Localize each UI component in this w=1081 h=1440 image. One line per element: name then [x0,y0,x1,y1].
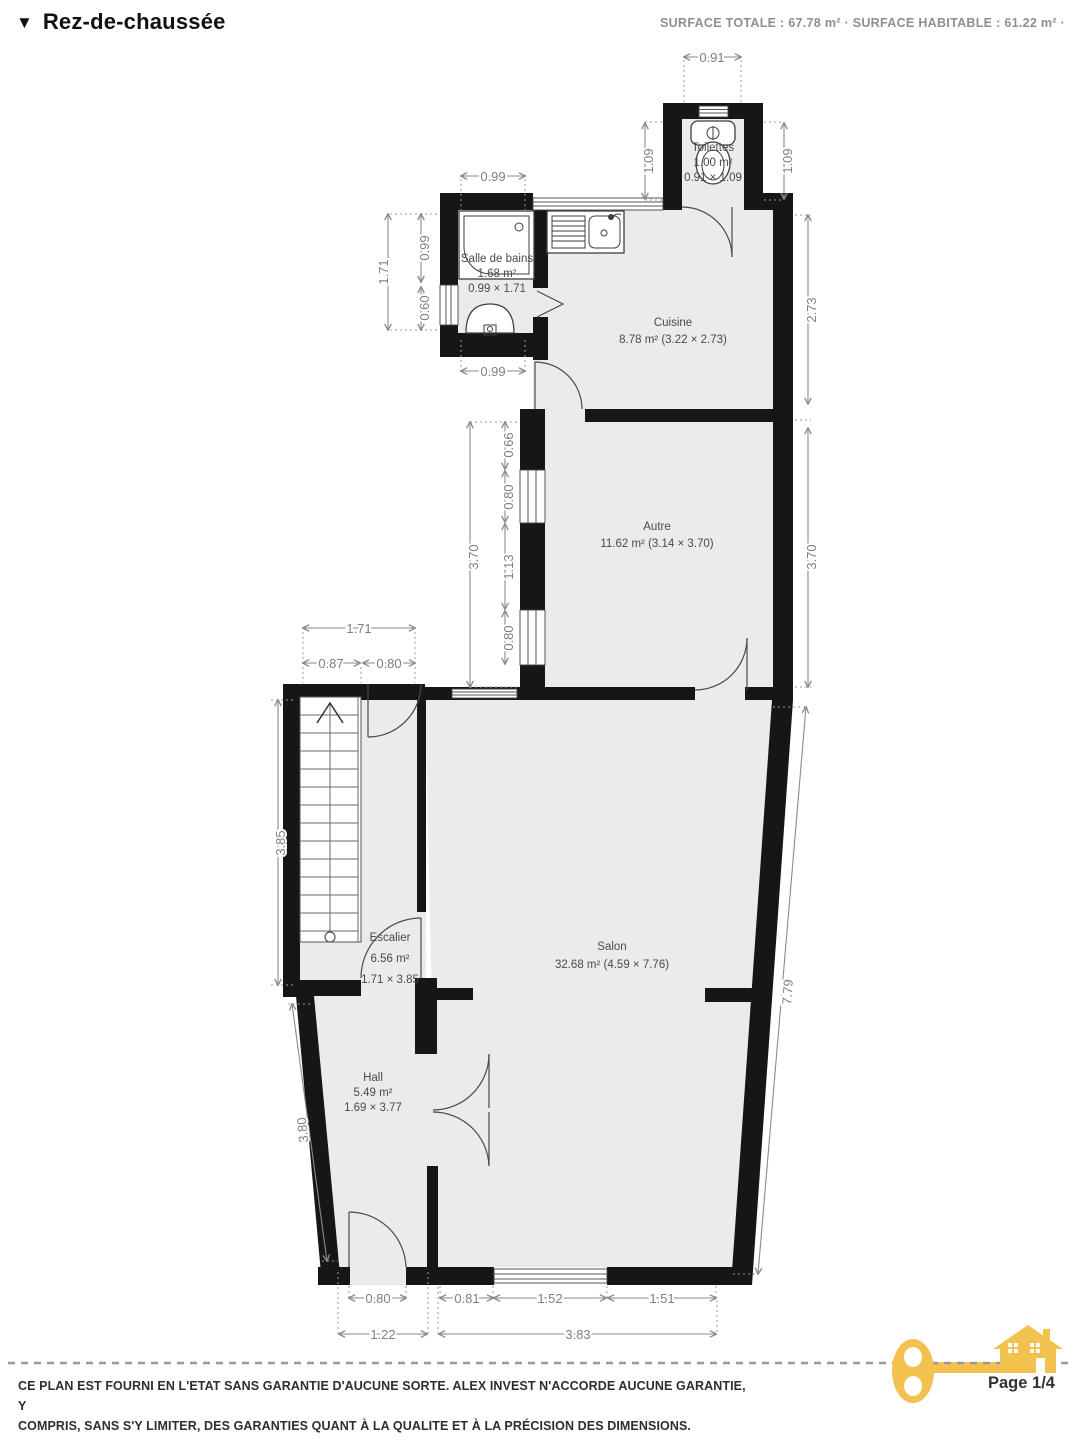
dim-sdb-width-bottom: 0.99 [480,364,505,379]
dim-toilettes-width: 0.91 [699,50,724,65]
disclaimer-line-1: CE PLAN EST FOURNI EN L'ETAT SANS GARANT… [18,1376,748,1416]
dim-hall-width: 1.22 [370,1327,395,1342]
label-escalier-dims: 1.71 × 3.85 [361,974,419,986]
disclaimer-line-2: COMPRIS, SANS S'Y LIMITER, DES GARANTIES… [18,1416,748,1436]
dim-toilettes-right: 1.09 [780,148,795,173]
label-cuisine-name: Cuisine [654,317,692,329]
label-sdb-area: 1.68 m² [478,268,517,280]
dim-salon-width: 3.83 [565,1327,590,1342]
label-cuisine-area: 8.78 m² (3.22 × 2.73) [619,334,727,346]
dim-sdb-left-a: 0.99 [417,235,432,260]
dim-esc-height: 3.85 [273,830,288,855]
house-logo-icon [993,1325,1063,1373]
dim-esc-width: 1.71 [346,621,371,636]
window-kitchen-band [533,198,663,210]
dim-salon-seg-a: 0.81 [454,1291,479,1306]
kitchen-sink-icon [547,211,624,253]
label-autre-area: 11.62 m² (3.14 × 3.70) [600,538,713,550]
label-toilettes-name: Toilettes [692,142,734,154]
dim-salon-window: 1.52 [537,1291,562,1306]
dim-hall-door: 0.80 [365,1291,390,1306]
key-logo-icon [892,1339,934,1403]
dim-toilettes-left: 1.09 [641,148,656,173]
label-salon-name: Salon [597,941,626,953]
dim-salon-seg-b: 1.51 [649,1291,674,1306]
dim-cuisine-height: 2.73 [804,297,819,322]
dim-autre-seg-a: 0.66 [501,432,516,457]
label-escalier-area: 6.56 m² [371,953,410,965]
floorplan-page: ▼ Rez-de-chaussée SURFACE TOTALE : 67.78… [0,0,1081,1440]
dim-autre-seg-b: 0.80 [501,484,516,509]
floor-autre [545,420,773,688]
label-hall-area: 5.49 m² [354,1087,393,1099]
dim-sdb-left-b: 0.60 [417,295,432,320]
dim-sdb-width-top: 0.99 [480,169,505,184]
window-salon-bottom [494,1269,607,1283]
window-sdb-left [440,285,458,325]
floor-salon [425,700,772,1267]
dim-esc-stairs: 0.87 [318,656,343,671]
window-autre-2 [520,610,545,665]
staircase [300,697,361,942]
label-toilettes-dims: 0.91 × 1.09 [684,172,742,184]
label-escalier-name: Escalier [370,932,411,944]
window-salon-top [452,689,517,698]
dim-autre-height-left: 3.70 [466,544,481,569]
label-autre-name: Autre [643,521,671,533]
dim-autre-seg-d: 0.80 [501,625,516,650]
label-hall-dims: 1.69 × 3.77 [344,1102,402,1114]
label-hall-name: Hall [363,1072,383,1084]
label-sdb-dims: 0.99 × 1.71 [468,283,526,295]
opening-front-door [350,1267,406,1285]
window-toilettes-top [699,106,728,117]
label-toilettes-area: 1.00 m² [694,157,733,169]
dim-salon-right: 7.79 [779,979,796,1005]
window-autre-1 [520,470,545,523]
dim-hall-left: 3.80 [294,1117,311,1144]
dim-sdb-height: 1.71 [376,259,391,284]
dim-esc-door: 0.80 [376,656,401,671]
footer-disclaimer: CE PLAN EST FOURNI EN L'ETAT SANS GARANT… [18,1376,748,1436]
dim-autre-seg-c: 1.13 [501,554,516,579]
dim-autre-height-right: 3.70 [804,544,819,569]
floorplan-drawing: 0.91 1.09 1.09 0.99 1.71 0.99 0.60 0.99 … [0,0,1081,1440]
label-salon-area: 32.68 m² (4.59 × 7.76) [555,959,669,971]
page-indicator: Page 1/4 [988,1374,1055,1393]
label-sdb-name: Salle de bains [461,253,533,265]
opening-cuisine [538,409,585,422]
